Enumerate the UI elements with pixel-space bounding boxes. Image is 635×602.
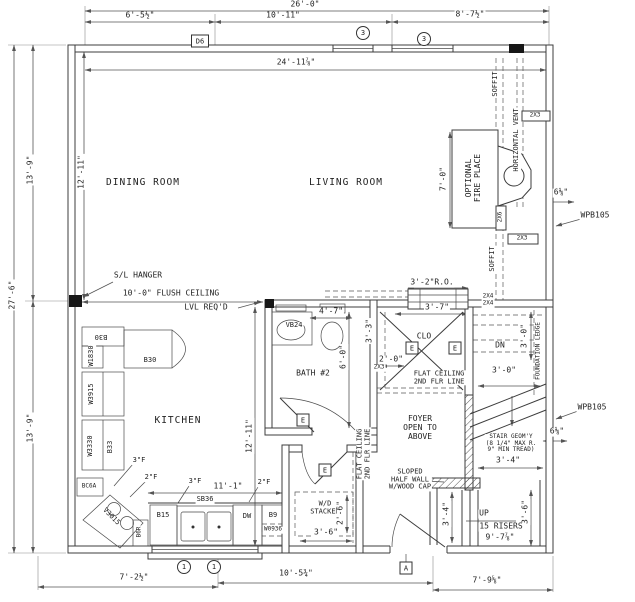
dim-left-lower: 13'-9" xyxy=(27,413,36,444)
dim-kitchen-interior: 12'-11" xyxy=(246,418,255,454)
sill-tag-1-a: 1 xyxy=(177,560,191,574)
room-label-dining: DINING ROOM xyxy=(105,178,181,188)
note-wpb105-lower: WPB105 xyxy=(577,404,608,413)
note-sloped-half-wall: SLOPED HALF WALL W/WOOD CAP xyxy=(388,468,432,491)
dim-dining-interior: 12'-11" xyxy=(78,154,87,190)
note-up: UP xyxy=(478,510,490,519)
dim-vent-offset-upper: 6⅛" xyxy=(553,189,569,198)
cabinet-sb36: SB36 xyxy=(196,496,215,504)
dim-top-overall: 26'-0" xyxy=(290,1,321,10)
note-2x4-b: 2X4 xyxy=(482,301,495,308)
dim-bath-closet-side: 3'-3" xyxy=(366,318,375,344)
dim-top-seg-mid: 10'-11" xyxy=(265,12,301,21)
electrical-tag-closet-left: E xyxy=(406,342,419,355)
cabinet-b9: B9 xyxy=(268,512,278,520)
cabinet-b33: B33 xyxy=(107,440,115,455)
section-tag-a: A xyxy=(400,562,413,575)
note-2x3-closet: 2X3 xyxy=(373,365,386,372)
note-filler-3f-a: 3"F xyxy=(132,457,147,465)
dim-left-upper: 13'-9" xyxy=(27,155,36,186)
dim-top-seg-left: 6'-5½" xyxy=(125,12,156,21)
dim-stair-landing: 3'-4" xyxy=(495,457,521,466)
cabinet-w3915: W3915 xyxy=(88,382,96,405)
window-tag-3-a: 3 xyxy=(356,26,370,40)
note-optional-fireplace: OPTIONAL FIRE PLACE xyxy=(465,153,483,203)
dim-fireplace: 7'-0" xyxy=(440,166,449,192)
cabinet-b15: B15 xyxy=(156,512,171,520)
note-filler-2f-a: 2"F xyxy=(144,474,159,482)
cabinet-b6r: B6R xyxy=(137,526,144,539)
window-tag-3-b: 3 xyxy=(417,32,431,46)
electrical-tag-hall: E xyxy=(319,464,332,477)
note-down: DN xyxy=(494,342,506,351)
hatched-walls xyxy=(430,395,480,490)
dim-stair-bottom-width: 3'-6" xyxy=(522,499,531,525)
dim-wd-depth: 2'-6" xyxy=(337,500,346,526)
dim-top-seg-right: 8'-7½" xyxy=(455,11,486,20)
dim-stair-window-ro: 3'-2"R.O. xyxy=(409,279,454,288)
note-2x3-top: 2X3 xyxy=(529,113,542,120)
note-flat-ceiling-foyer: FLAT CEILING 2ND FLR LINE xyxy=(413,370,466,385)
walls xyxy=(68,45,553,553)
room-label-bath2: BATH #2 xyxy=(295,370,331,379)
note-filler-3f-b: 3"F xyxy=(188,478,203,486)
dim-stair-total-run: 9'-7⅞" xyxy=(485,534,516,543)
note-stair-geometry: STAIR GEOM'Y (8 1/4" MAX R. 9" MIN TREAD… xyxy=(485,434,538,454)
cabinet-w0936: W0936 xyxy=(263,527,283,534)
note-risers: 15 RISERS xyxy=(478,523,523,532)
note-2x6: 2X6 xyxy=(498,211,505,224)
dim-bottom-seg-mid: 10'-5¾" xyxy=(278,570,314,579)
dim-wd-width: 3'-6" xyxy=(313,529,339,538)
note-soffit-lower: SOFFIT xyxy=(489,245,497,272)
dim-ledge-horizontal: 3'-0" xyxy=(491,367,517,376)
room-label-foyer: FOYER OPEN TO ABOVE xyxy=(402,415,438,441)
dim-left-overall: 27'-6" xyxy=(9,280,18,311)
dim-bottom-seg-right: 7'-9⅝" xyxy=(472,577,503,586)
note-horizontal-vent: HORIZONTAL VENT xyxy=(513,107,521,172)
note-flat-ceiling-hall: FLAT CEILING 2ND FLR LINE xyxy=(356,428,371,481)
floor-plan: DINING ROOM LIVING ROOM KITCHEN BATH #2 … xyxy=(0,0,635,602)
dim-lvl-reqd: LVL REQ'D xyxy=(183,304,228,313)
sill-tag-1-b: 1 xyxy=(207,560,221,574)
note-2x3-bottom: 2X3 xyxy=(516,236,529,243)
dim-top-interior: 24'-11⅞" xyxy=(276,59,317,68)
dim-vent-offset-lower: 6⅛" xyxy=(549,428,565,437)
electrical-tag-bath: E xyxy=(297,414,310,427)
dim-bath-fixture: 4'-7" xyxy=(318,308,344,317)
cabinet-w1830: W1830 xyxy=(88,344,96,367)
electrical-tag-closet-right: E xyxy=(449,342,462,355)
room-label-living: LIVING ROOM xyxy=(308,178,384,188)
note-foundation-ledge: FOUNDATION LEDGE xyxy=(536,321,543,381)
room-label-kitchen: KITCHEN xyxy=(153,416,202,426)
dim-bath-interior: 6'-0" xyxy=(340,344,349,370)
dim-ledge-vertical: 3'-0" xyxy=(521,323,530,349)
dim-stair-flight-width: 3'-4" xyxy=(443,501,452,527)
dim-bottom-seg-left: 7'-2½" xyxy=(119,574,150,583)
cabinet-bc6a: BC6A xyxy=(81,484,97,491)
note-soffit-upper: SOFFIT xyxy=(492,70,500,97)
dim-counter-run: 11'-1" xyxy=(213,483,244,492)
fixture-vb24: VB24 xyxy=(285,322,304,330)
extension-lines xyxy=(8,6,553,592)
door-tag-d6: D6 xyxy=(191,35,209,48)
dim-closet-opening: 3'-7" xyxy=(424,304,450,313)
note-sl-hanger: S/L HANGER xyxy=(113,272,163,281)
note-filler-2f-b: 2"F xyxy=(257,479,272,487)
cabinet-b30-upper: B30 xyxy=(94,332,109,340)
dim-flush-ceiling: 10'-0" FLUSH CEILING xyxy=(122,290,220,299)
cabinet-b30-peninsula: B30 xyxy=(143,357,158,365)
note-wpb105-upper: WPB105 xyxy=(580,212,611,221)
cabinet-w3330: W3330 xyxy=(87,434,95,457)
cabinet-dw: DW xyxy=(242,513,252,521)
room-label-closet: CLO xyxy=(416,333,432,342)
